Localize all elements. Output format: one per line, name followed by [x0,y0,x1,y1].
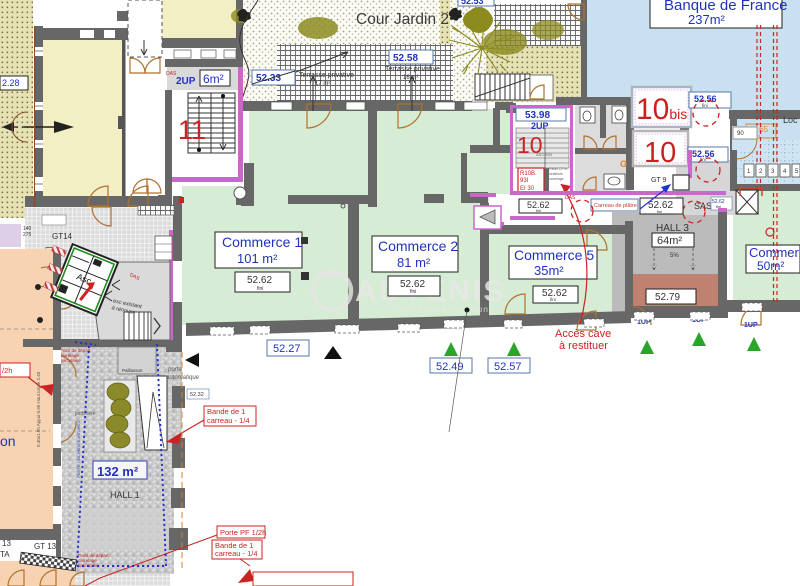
svg-text:GT 9: GT 9 [651,177,667,184]
svg-text:porcelainé: porcelainé [60,358,81,363]
svg-text:13: 13 [2,539,11,548]
svg-text:52.32: 52.32 [190,392,204,398]
svg-text:G: G [620,159,627,169]
svg-text:132 m²: 132 m² [97,464,139,479]
svg-text:93I: 93I [520,178,529,184]
svg-text:fini: fini [536,208,541,213]
svg-text:11: 11 [178,115,206,145]
svg-text:fini: fini [550,297,556,302]
svg-text:Real Estate Solutions: Real Estate Solutions [392,304,494,314]
svg-text:fini: fini [257,286,263,292]
svg-text:0.40x1.50 Appui 0.90 Haut.tota: 0.40x1.50 Appui 0.90 Haut.totale 2.40 [36,371,41,447]
svg-text:DAS: DAS [166,71,177,77]
svg-text:Commerce 1: Commerce 1 [222,234,302,250]
svg-text:SAS: SAS [694,201,712,211]
svg-text:275: 275 [23,232,32,238]
svg-text:5%: 5% [670,253,679,259]
svg-text:fini: fini [657,209,662,214]
svg-text:fini: fini [700,157,706,162]
svg-text:Terrasse privative: Terrasse privative [385,66,440,73]
svg-text:Paillasson: Paillasson [122,368,143,373]
svg-text:HALL 1: HALL 1 [110,490,140,500]
svg-text:52.27: 52.27 [273,343,301,355]
svg-text:50m²: 50m² [757,259,784,273]
svg-text:101 m²: 101 m² [237,251,278,266]
svg-text:35m²: 35m² [534,263,564,278]
svg-text:52.53: 52.53 [461,0,484,6]
svg-text:Loc: Loc [783,115,798,125]
svg-text:HALL 3: HALL 3 [656,223,689,234]
svg-text:Carreau de plâtre: Carreau de plâtre [594,203,637,209]
svg-text:Porte PF 1/2h: Porte PF 1/2h [220,528,266,537]
svg-text:porte: porte [167,367,182,373]
svg-text:carreau - 1/4: carreau - 1/4 [215,549,258,558]
svg-text:Commerce 5: Commerce 5 [514,247,594,263]
svg-text:90: 90 [737,131,744,137]
svg-text:ASC 630: ASC 630 [536,152,553,157]
svg-text:53.98: 53.98 [525,110,550,121]
svg-text:vestibule: vestibule [549,172,563,176]
svg-text:GT 13: GT 13 [34,542,57,551]
svg-text:Accès cave: Accès cave [555,328,611,340]
svg-text:fini: fini [702,103,708,108]
svg-text:10: 10 [644,137,676,169]
svg-text:automatique: automatique [166,375,200,381]
svg-text:on: on [0,433,16,449]
svg-text:carrelage: carrelage [549,177,564,181]
svg-text:1UP: 1UP [744,322,758,329]
svg-text:Commerce 2: Commerce 2 [378,238,458,254]
svg-text:fini: fini [410,289,416,295]
svg-text:52.79: 52.79 [655,292,680,303]
svg-text:Commer: Commer [749,245,800,260]
svg-text:237m²: 237m² [688,12,726,27]
svg-text:/2h: /2h [2,366,12,375]
svg-text:GT14: GT14 [52,232,73,241]
svg-text:Palier CF et: Palier CF et [549,167,568,171]
svg-text:Bande de 1: Bande de 1 [207,407,245,416]
svg-text:R10B.: R10B. [520,171,537,177]
svg-text:52.58: 52.58 [393,53,418,64]
svg-text:à restituer: à restituer [559,340,608,352]
svg-text:carreau - 1/4: carreau - 1/4 [207,416,250,425]
svg-text:2.28: 2.28 [2,78,20,88]
svg-text:52.62: 52.62 [247,275,272,286]
svg-text:52.57: 52.57 [494,361,522,373]
svg-text:81 m²: 81 m² [397,255,431,270]
svg-text:2UP: 2UP [531,121,549,131]
svg-text:Banque de France: Banque de France [664,0,787,14]
svg-text:6m²: 6m² [203,72,224,86]
svg-text:64m²: 64m² [657,235,682,247]
svg-text:17 m²: 17 m² [315,81,330,87]
svg-text:PORTE COCHERE EXISTANTE: PORTE COCHERE EXISTANTE [76,420,81,478]
svg-text:2UP: 2UP [176,76,196,87]
svg-text:TA: TA [0,550,10,559]
svg-text:Cour Jardin 2: Cour Jardin 2 [356,11,449,28]
svg-text:Terrasse privative: Terrasse privative [299,72,354,79]
